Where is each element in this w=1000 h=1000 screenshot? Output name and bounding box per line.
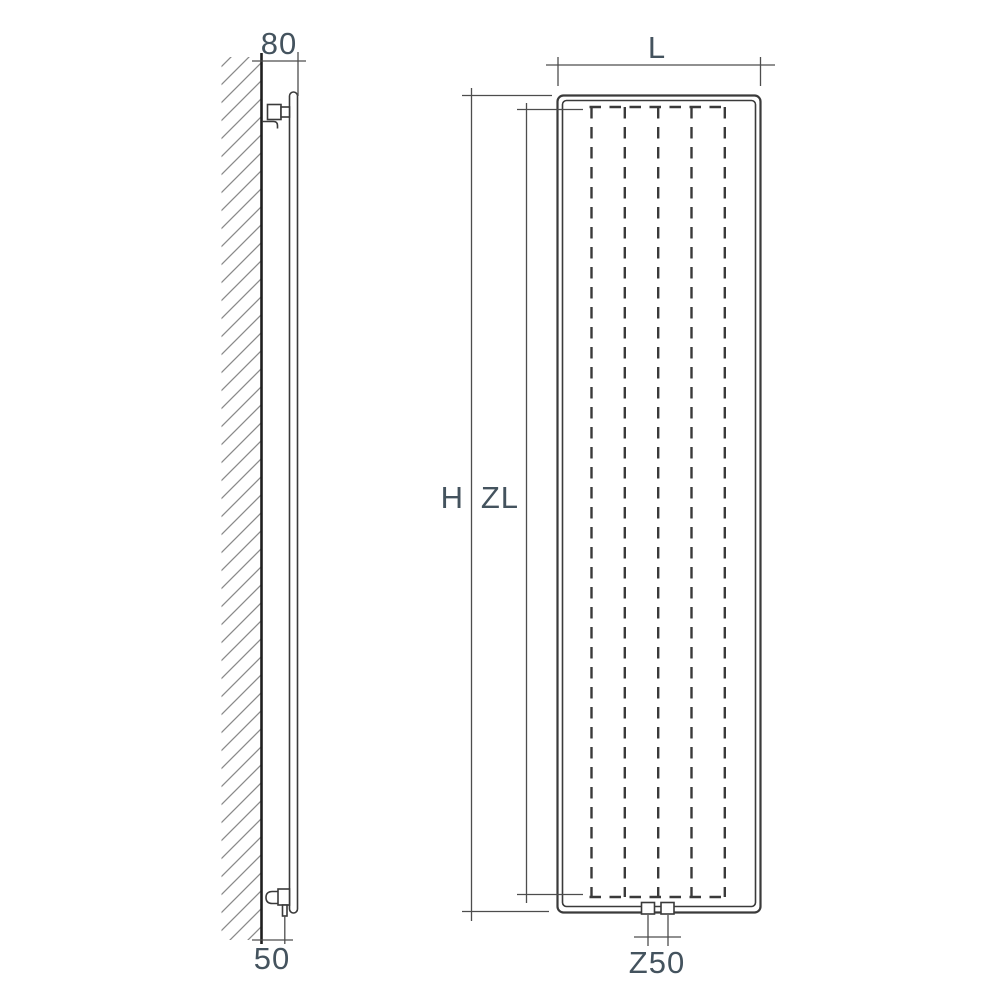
top-bracket-hook: [262, 122, 278, 129]
dimension-width-L: L: [546, 30, 775, 86]
bottom-bracket: [266, 889, 290, 916]
offset-label: 50: [254, 941, 290, 976]
top-bracket-arm: [281, 107, 290, 117]
radiator-technical-drawing: 80 50 L: [0, 0, 1000, 1000]
bottom-valve-stub: [283, 905, 288, 916]
bottom-bracket-block: [278, 889, 290, 905]
internal-element-hidden-lines: [590, 107, 727, 897]
height-label: H: [441, 480, 464, 515]
bottom-bracket-arm: [266, 892, 278, 904]
top-bracket: [262, 105, 290, 129]
inner-height-label: ZL: [481, 480, 519, 515]
top-bracket-block: [268, 105, 282, 120]
side-view: 80 50: [222, 26, 307, 976]
depth-label: 80: [261, 26, 297, 61]
radiator-panel-profile: [290, 92, 298, 913]
drawing-canvas: 80 50 L: [0, 0, 1000, 1000]
dimension-connection-Z50: Z50: [629, 915, 685, 980]
dimension-inner-height-ZL: ZL: [481, 103, 583, 903]
front-view: L H ZL Z50: [441, 30, 775, 980]
width-label: L: [648, 30, 666, 65]
radiator-inner-frame: [563, 101, 756, 907]
connection-left: [642, 903, 655, 915]
connection-right: [661, 903, 674, 915]
connection-label: Z50: [629, 945, 685, 980]
wall-hatch: [222, 57, 262, 940]
